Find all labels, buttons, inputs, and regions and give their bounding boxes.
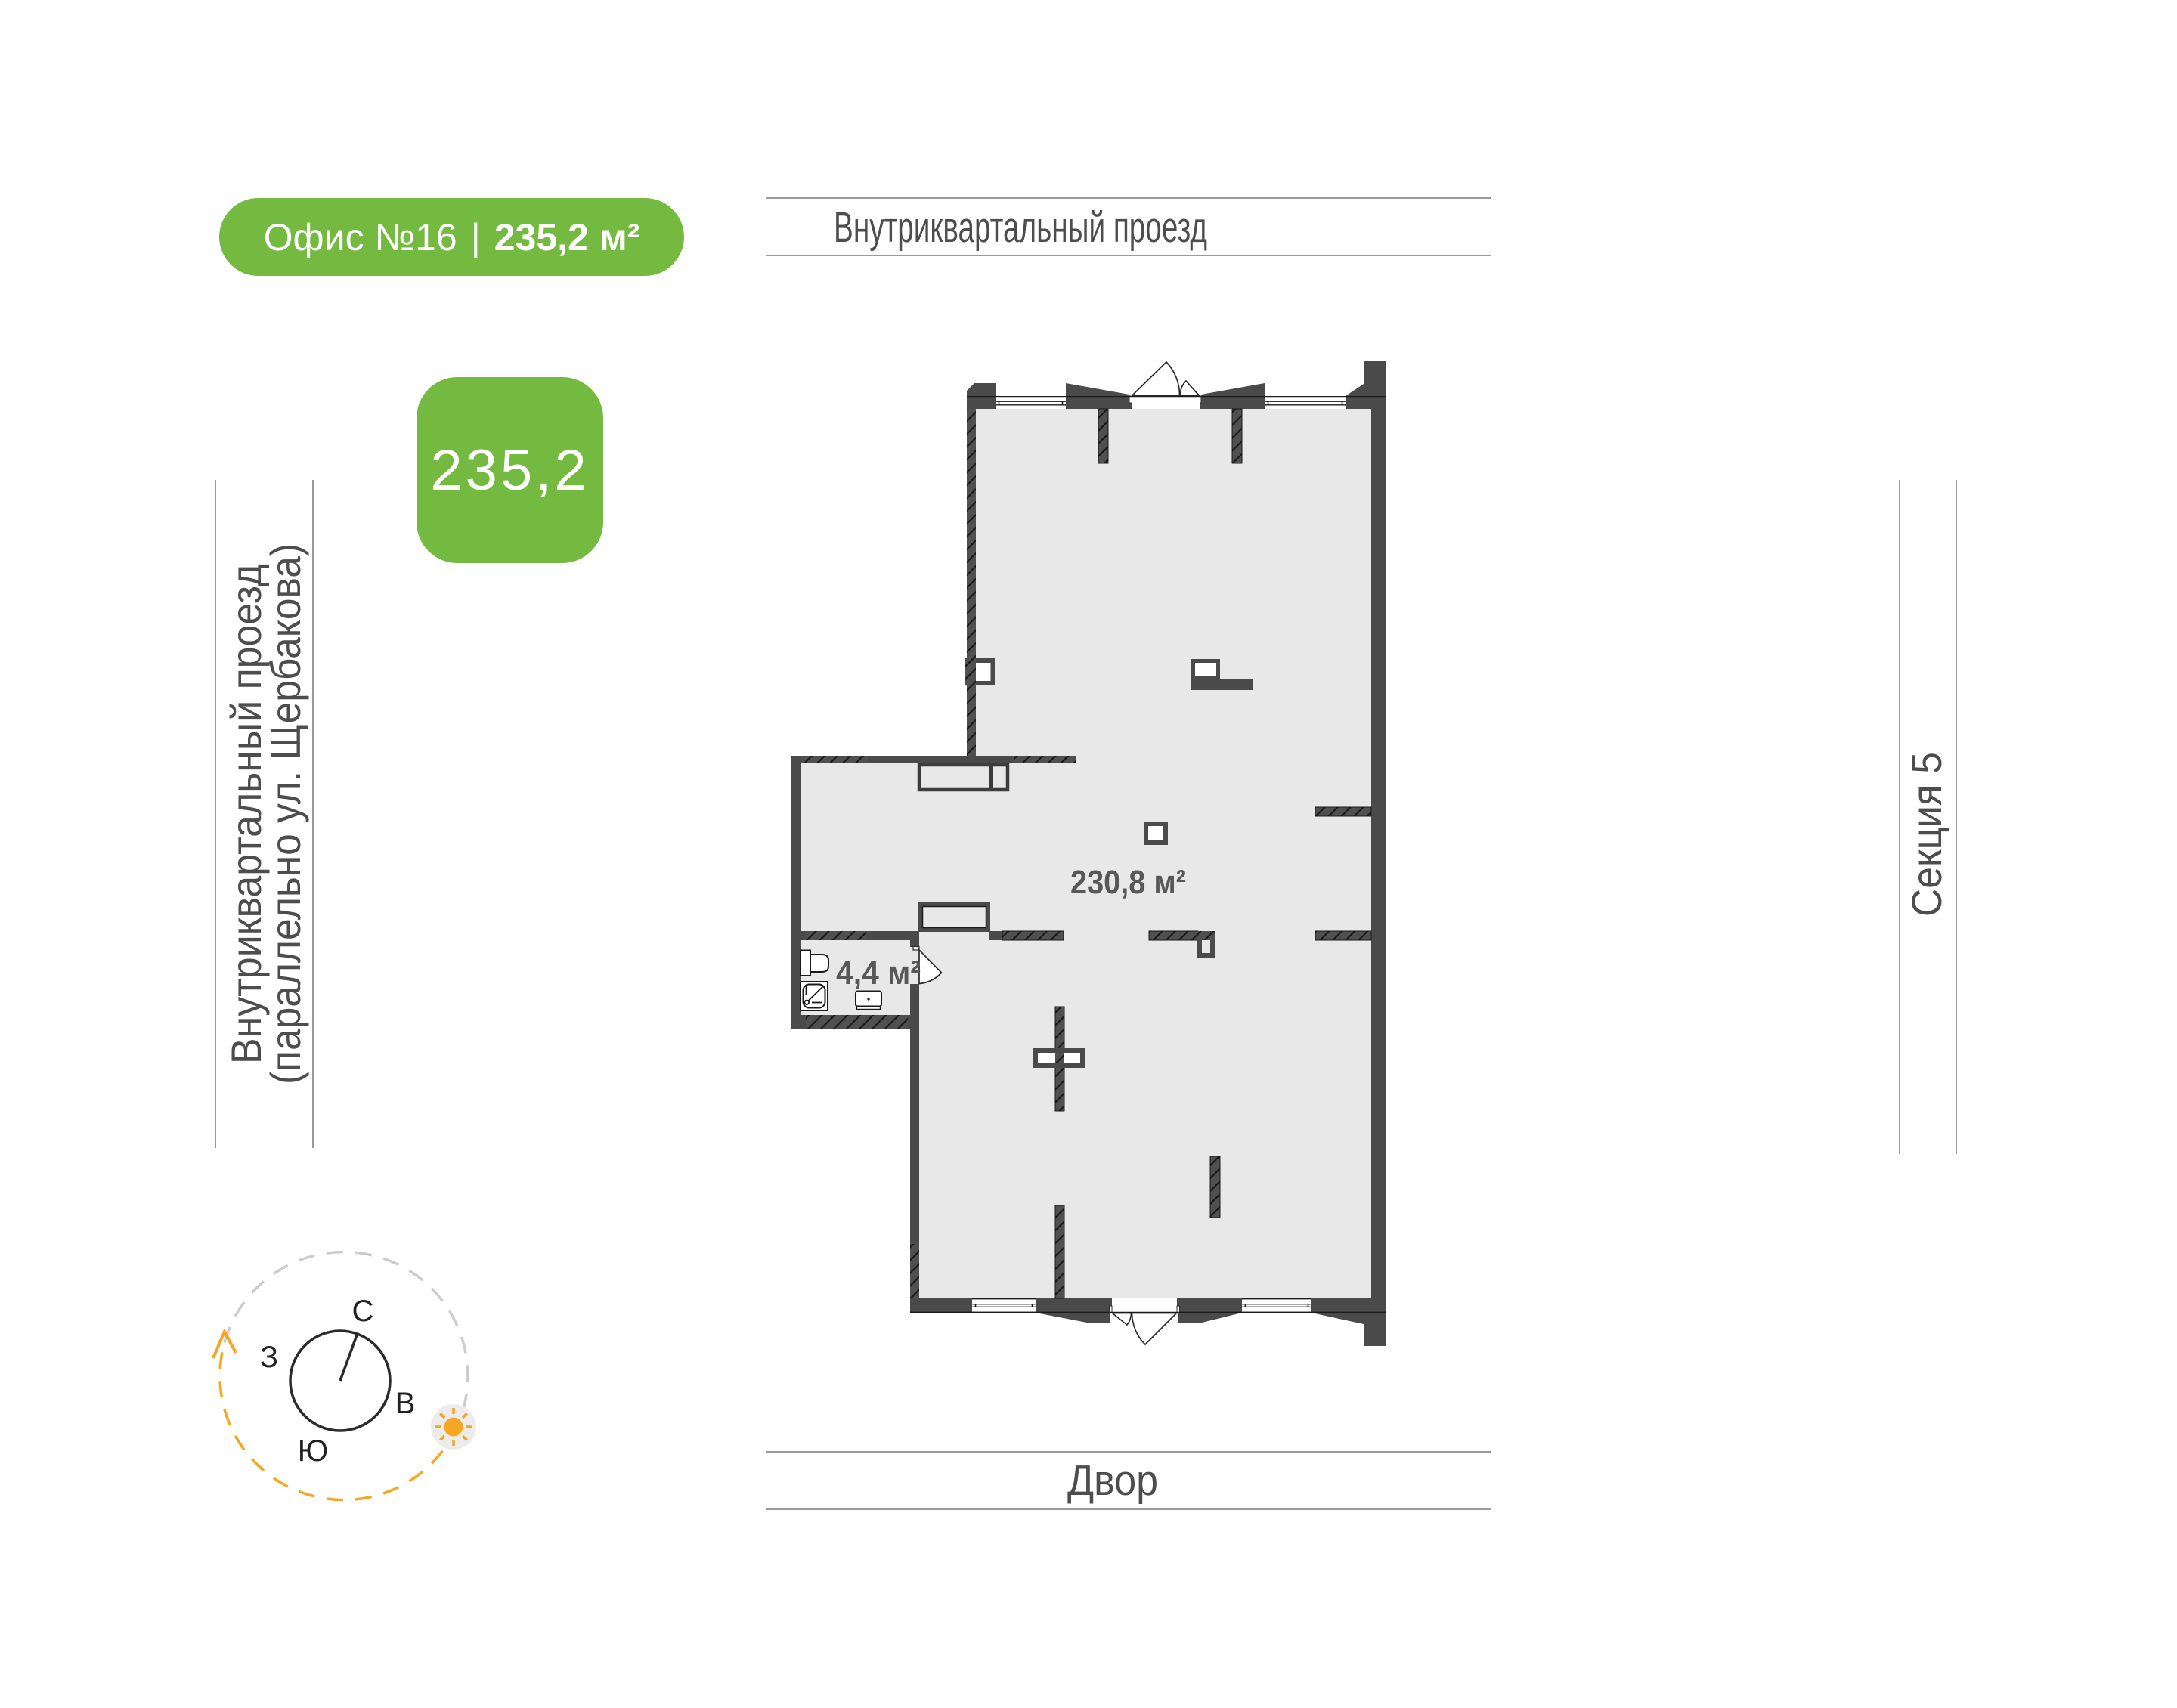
- svg-text:Внутриквартальный проезд: Внутриквартальный проезд: [834, 203, 1207, 252]
- svg-text:Секция 5: Секция 5: [1903, 752, 1950, 917]
- svg-text:С: С: [352, 1295, 374, 1328]
- svg-text:230,8 м²: 230,8 м²: [1070, 864, 1186, 901]
- svg-text:Двор: Двор: [1067, 1456, 1158, 1505]
- svg-text:(параллельно ул. Щербакова): (параллельно ул. Щербакова): [262, 543, 309, 1085]
- svg-text:В: В: [395, 1387, 416, 1420]
- svg-text:4,4 м²: 4,4 м²: [836, 955, 921, 992]
- svg-text:З: З: [260, 1341, 278, 1374]
- svg-text:Ю: Ю: [298, 1434, 328, 1468]
